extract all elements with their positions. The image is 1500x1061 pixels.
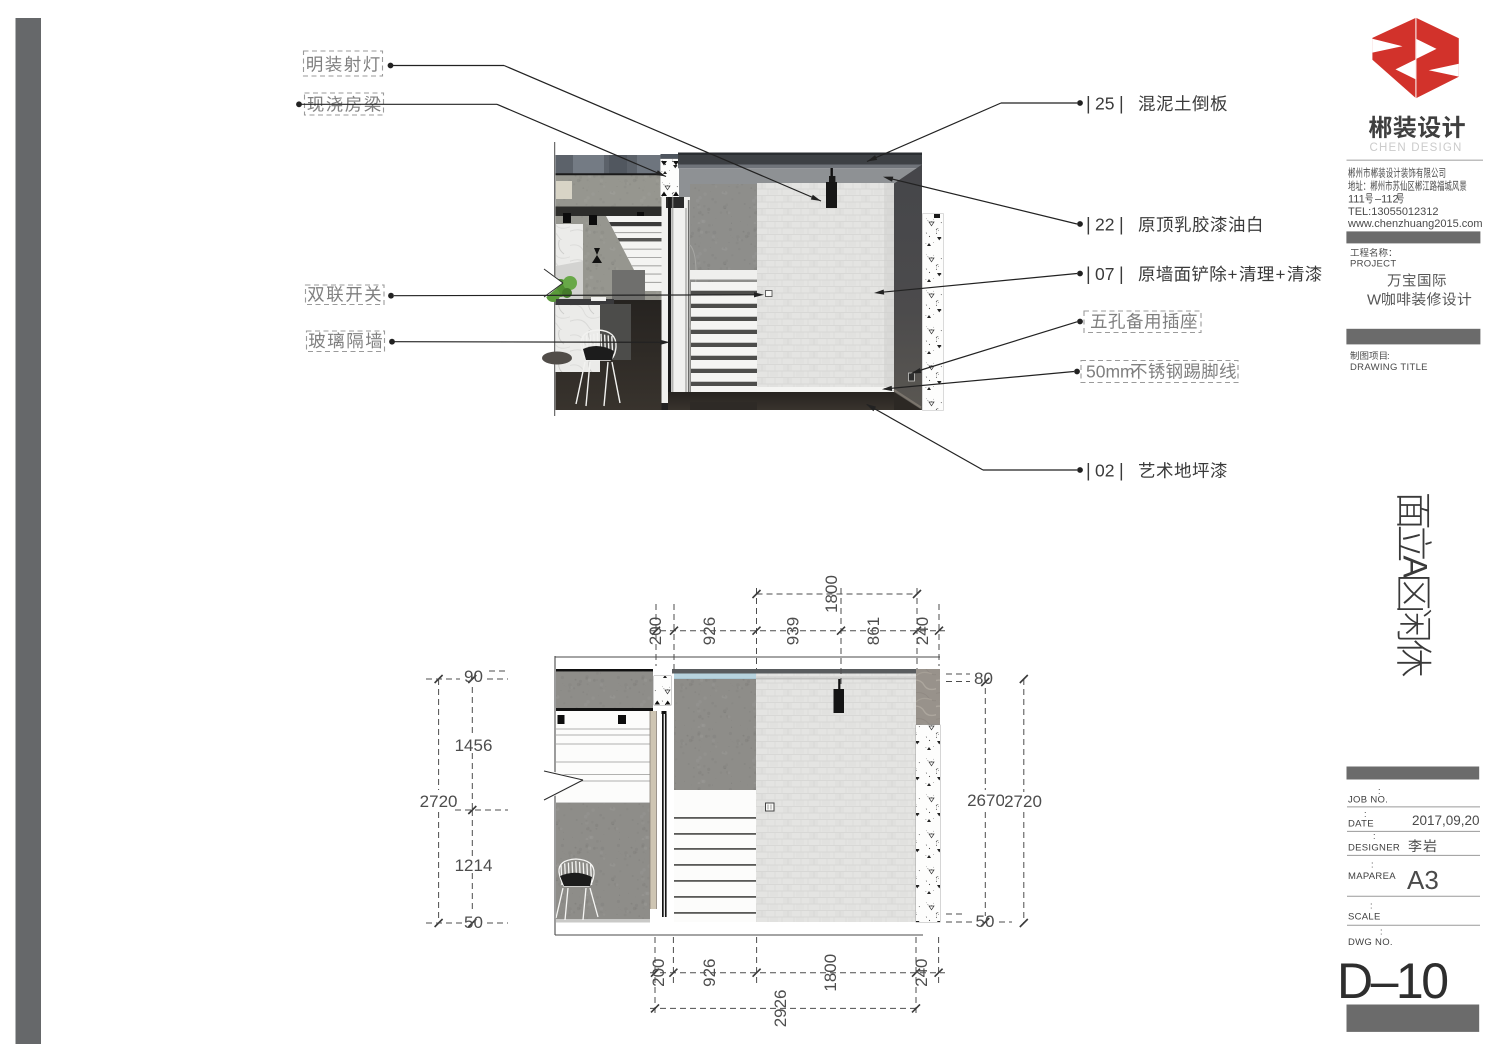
svg-text:CHEN DESIGN: CHEN DESIGN (1369, 142, 1462, 154)
svg-text:DRAWING TITLE: DRAWING TITLE (1350, 362, 1428, 373)
svg-text:A3: A3 (1407, 865, 1439, 895)
svg-text:111: 111 (1348, 194, 1365, 206)
svg-text:07: 07 (1095, 264, 1114, 284)
svg-text:MAPAREA: MAPAREA (1348, 871, 1396, 882)
svg-text:|: | (1119, 94, 1124, 114)
svg-text:2017,09,20: 2017,09,20 (1412, 813, 1480, 828)
svg-text:1214: 1214 (455, 856, 493, 875)
svg-text:1800: 1800 (821, 954, 840, 992)
svg-text:02: 02 (1095, 461, 1114, 481)
svg-text:2720: 2720 (420, 792, 458, 811)
svg-text:JOB NO.: JOB NO. (1348, 795, 1388, 806)
svg-text:DESIGNER: DESIGNER (1348, 843, 1400, 854)
svg-text::: : (1378, 786, 1381, 796)
svg-text:PROJECT: PROJECT (1350, 259, 1396, 270)
svg-text:2926: 2926 (771, 989, 790, 1027)
svg-text:+: + (1228, 265, 1238, 284)
svg-text:DWG NO.: DWG NO. (1348, 937, 1393, 948)
svg-text:|: | (1086, 264, 1091, 284)
svg-text:939: 939 (784, 617, 803, 645)
svg-text:22: 22 (1095, 215, 1114, 235)
svg-text:DATE: DATE (1348, 819, 1374, 830)
svg-text:80: 80 (974, 669, 993, 688)
svg-text:–112: –112 (1375, 194, 1399, 206)
svg-text:240: 240 (913, 617, 932, 645)
svg-text:25: 25 (1095, 94, 1114, 114)
svg-text::: : (1370, 901, 1373, 911)
svg-text::: : (1364, 809, 1367, 819)
svg-text:+: + (1276, 265, 1286, 284)
svg-text::: : (1373, 831, 1376, 841)
svg-text:200: 200 (649, 959, 668, 987)
svg-text:|: | (1086, 215, 1091, 235)
svg-text:240: 240 (912, 959, 931, 987)
svg-text:926: 926 (700, 617, 719, 645)
svg-text:200: 200 (646, 617, 665, 645)
svg-text:D–10: D–10 (1337, 953, 1447, 1009)
svg-text:|: | (1119, 215, 1124, 235)
svg-text:SCALE: SCALE (1348, 912, 1381, 923)
svg-text:50: 50 (464, 913, 483, 932)
svg-text:926: 926 (700, 959, 719, 987)
svg-text:90: 90 (464, 667, 483, 686)
svg-text:50: 50 (976, 912, 995, 931)
svg-text:2720: 2720 (1004, 792, 1042, 811)
svg-text:1800: 1800 (822, 575, 841, 613)
svg-text::: : (1371, 860, 1374, 870)
svg-text::: : (1380, 927, 1383, 937)
svg-text:TEL:13055012312: TEL:13055012312 (1348, 206, 1439, 218)
svg-text:www.chenzhuang2015.com: www.chenzhuang2015.com (1347, 218, 1483, 230)
svg-text:50mm: 50mm (1086, 362, 1135, 382)
svg-text:A: A (1396, 555, 1434, 578)
svg-text:W: W (1367, 292, 1382, 309)
svg-text:2670: 2670 (967, 791, 1005, 810)
svg-text:1456: 1456 (455, 736, 493, 755)
svg-text:|: | (1086, 94, 1091, 114)
svg-text:|: | (1119, 264, 1124, 284)
svg-text:861: 861 (864, 617, 883, 645)
svg-text:|: | (1119, 461, 1124, 481)
svg-text::: : (1387, 351, 1390, 362)
svg-text:|: | (1086, 461, 1091, 481)
